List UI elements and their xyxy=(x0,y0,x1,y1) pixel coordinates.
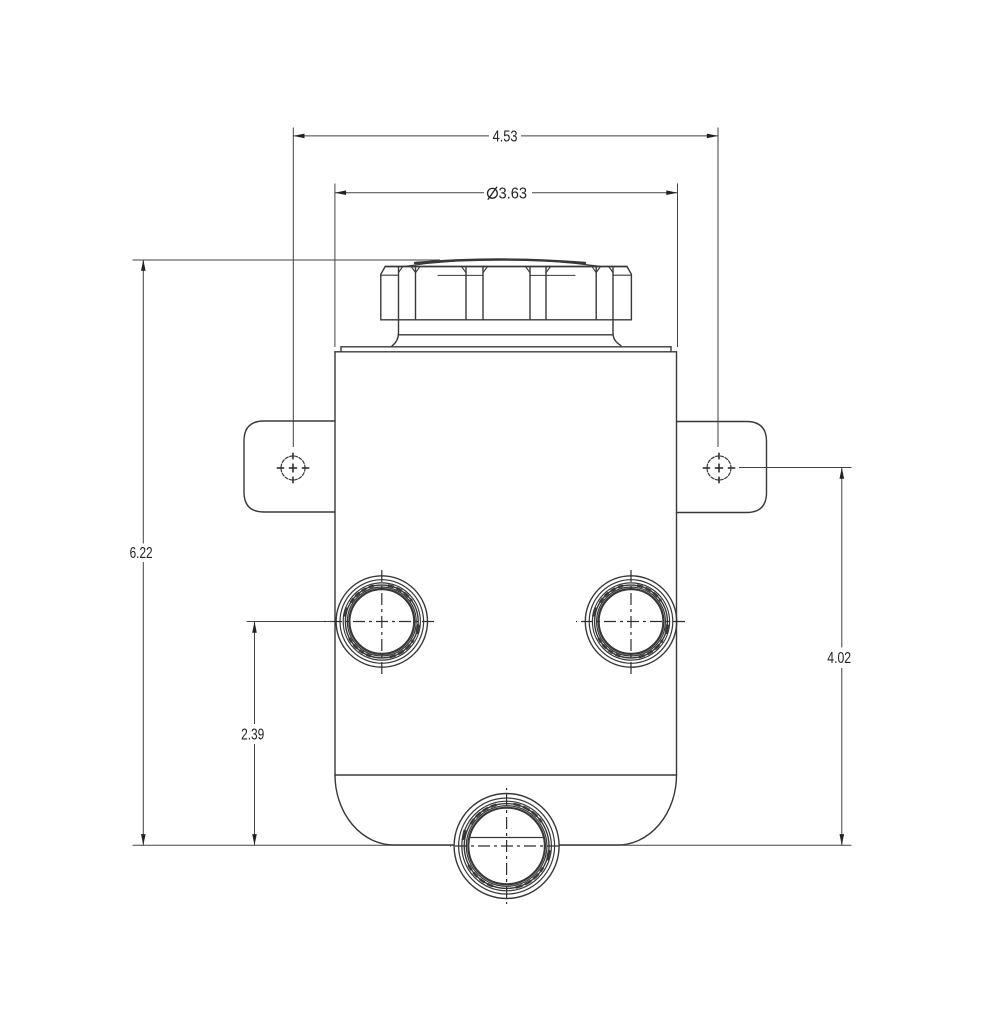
svg-text:4.02: 4.02 xyxy=(827,650,851,667)
svg-text:4.53: 4.53 xyxy=(493,129,518,146)
svg-text:6.22: 6.22 xyxy=(130,545,153,562)
svg-text:2.39: 2.39 xyxy=(241,727,264,744)
svg-text:3.63: 3.63 xyxy=(499,186,528,203)
